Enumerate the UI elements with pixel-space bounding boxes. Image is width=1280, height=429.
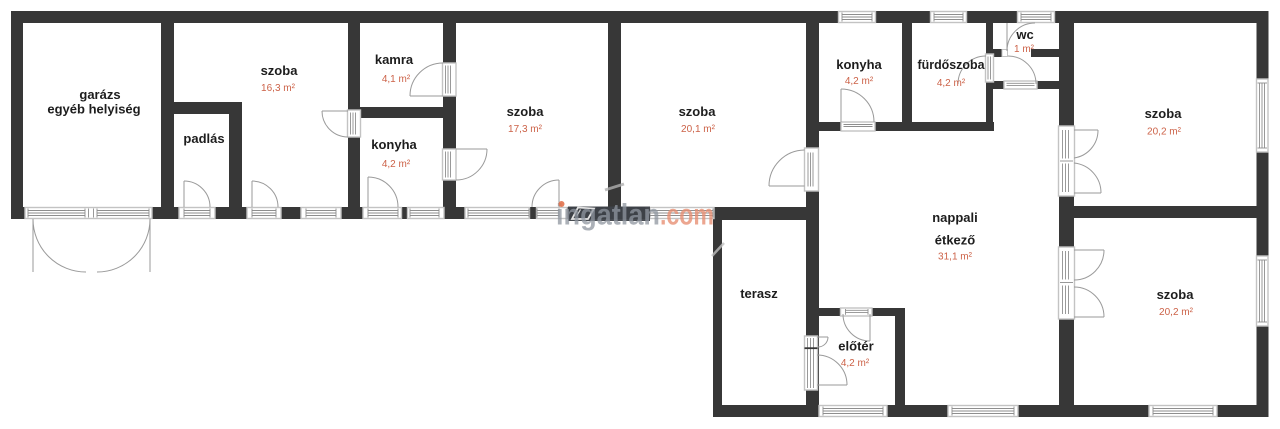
svg-text:előtér: előtér bbox=[838, 339, 873, 354]
svg-text:4,1 m²: 4,1 m² bbox=[382, 74, 411, 85]
svg-text:4,2 m²: 4,2 m² bbox=[845, 76, 874, 87]
svg-text:szoba: szoba bbox=[507, 104, 545, 119]
svg-text:terasz: terasz bbox=[740, 286, 778, 301]
svg-text:szoba: szoba bbox=[1157, 287, 1195, 302]
svg-text:.com: .com bbox=[660, 199, 714, 232]
svg-text:egyéb helyiség: egyéb helyiség bbox=[47, 102, 140, 117]
svg-text:kamra: kamra bbox=[375, 52, 414, 67]
svg-text:16,3 m²: 16,3 m² bbox=[261, 83, 296, 94]
svg-text:20,1 m²: 20,1 m² bbox=[681, 124, 716, 135]
svg-text:ingatlan: ingatlan bbox=[556, 199, 660, 232]
svg-text:4,2 m²: 4,2 m² bbox=[937, 78, 966, 89]
svg-text:padlás: padlás bbox=[183, 131, 224, 146]
svg-text:nappali: nappali bbox=[932, 210, 978, 225]
svg-text:1 m²: 1 m² bbox=[1014, 44, 1035, 55]
svg-text:fürdőszoba: fürdőszoba bbox=[918, 57, 986, 72]
svg-text:wc: wc bbox=[1015, 27, 1033, 42]
svg-text:4,2 m²: 4,2 m² bbox=[841, 358, 870, 369]
svg-text:31,1 m²: 31,1 m² bbox=[938, 252, 973, 263]
svg-text:szoba: szoba bbox=[1145, 106, 1183, 121]
svg-text:szoba: szoba bbox=[261, 63, 299, 78]
svg-text:4,2 m²: 4,2 m² bbox=[382, 159, 411, 170]
svg-text:konyha: konyha bbox=[371, 137, 417, 152]
svg-text:szoba: szoba bbox=[679, 104, 717, 119]
svg-text:konyha: konyha bbox=[836, 57, 882, 72]
svg-text:20,2 m²: 20,2 m² bbox=[1147, 127, 1182, 138]
svg-text:20,2 m²: 20,2 m² bbox=[1159, 307, 1194, 318]
svg-text:étkező: étkező bbox=[935, 233, 976, 248]
svg-text:garázs: garázs bbox=[79, 87, 120, 102]
svg-text:17,3 m²: 17,3 m² bbox=[508, 124, 543, 135]
